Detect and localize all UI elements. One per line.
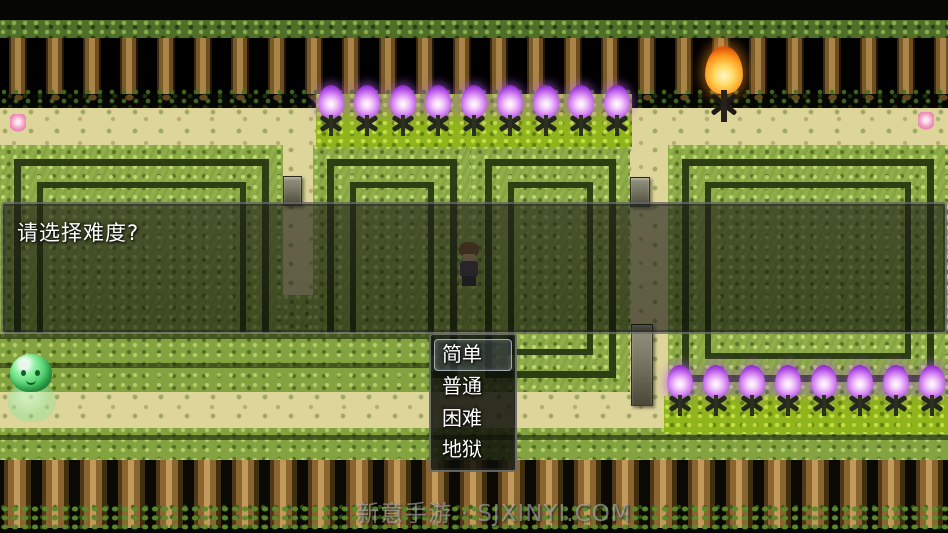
purple-flame-torch-icon xyxy=(317,85,345,141)
message-prompt: 请选择难度? xyxy=(17,217,931,247)
purple-flame-torch-icon xyxy=(603,85,631,141)
purple-flame xyxy=(425,85,451,118)
purple-flame xyxy=(604,85,630,118)
campfire-torch-icon xyxy=(702,46,746,132)
choice-easy[interactable]: 简单 xyxy=(434,339,512,371)
purple-flame xyxy=(739,365,765,398)
purple-flame xyxy=(354,85,380,118)
purple-flame xyxy=(775,365,801,398)
pink-flower-icon xyxy=(10,114,26,132)
orange-flame xyxy=(705,46,743,94)
purple-flame xyxy=(568,85,594,118)
pink-flower-icon xyxy=(918,112,934,130)
purple-flame-torch-icon xyxy=(460,85,488,141)
choice-normal[interactable]: 普通 xyxy=(434,371,512,403)
purple-torch-row-top xyxy=(317,85,631,141)
purple-flame-torch-icon xyxy=(702,365,730,421)
green-slime-sprite xyxy=(8,352,58,424)
purple-flame-torch-icon xyxy=(424,85,452,141)
slime-eye xyxy=(21,370,26,376)
purple-flame-torch-icon xyxy=(918,365,946,421)
purple-flame-torch-icon xyxy=(353,85,381,141)
purple-flame xyxy=(667,365,693,398)
purple-torch-row-bottom-right xyxy=(666,365,946,421)
choice-hard[interactable]: 困难 xyxy=(434,403,512,435)
purple-flame xyxy=(811,365,837,398)
purple-flame-torch-icon xyxy=(774,365,802,421)
purple-flame xyxy=(883,365,909,398)
stone-pillar-tall xyxy=(631,324,653,406)
message-window[interactable]: 请选择难度? xyxy=(1,202,947,334)
purple-flame-torch-icon xyxy=(567,85,595,141)
purple-flame xyxy=(461,85,487,118)
difficulty-choice-window: 简单 普通 困难 地狱 xyxy=(429,333,517,472)
purple-flame xyxy=(703,365,729,398)
site-watermark: 新意手游 · SJXINYI.COM xyxy=(0,494,948,528)
purple-flame-torch-icon xyxy=(846,365,874,421)
purple-flame-torch-icon xyxy=(810,365,838,421)
purple-flame xyxy=(847,365,873,398)
hedge-row-strip-left xyxy=(0,333,430,392)
slime-eye xyxy=(35,370,40,376)
game-screen: 请选择难度? 简单 普通 困难 地狱 新意手游 · SJXINYI.COM xyxy=(0,0,948,533)
choice-hell[interactable]: 地狱 xyxy=(434,434,512,466)
purple-flame xyxy=(390,85,416,118)
purple-flame-torch-icon xyxy=(666,365,694,421)
purple-flame-torch-icon xyxy=(738,365,766,421)
slime-head xyxy=(10,354,52,392)
purple-flame-torch-icon xyxy=(882,365,910,421)
purple-flame-torch-icon xyxy=(532,85,560,141)
purple-flame-torch-icon xyxy=(496,85,524,141)
purple-flame xyxy=(533,85,559,118)
purple-flame xyxy=(497,85,523,118)
purple-flame xyxy=(318,85,344,118)
purple-flame-torch-icon xyxy=(389,85,417,141)
purple-flame xyxy=(919,365,945,398)
